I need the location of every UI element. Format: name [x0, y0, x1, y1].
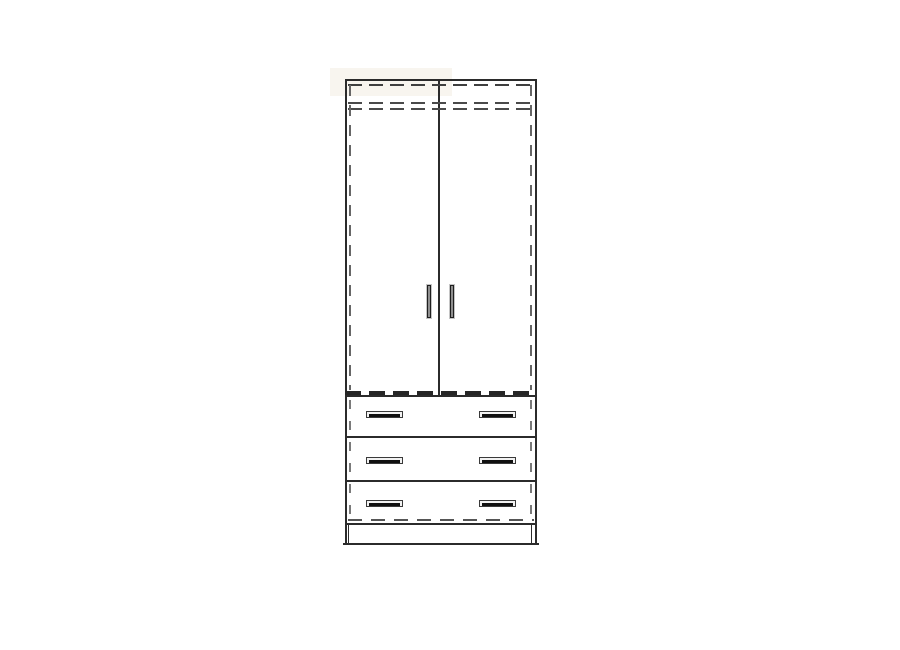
- right-door-panel: [440, 81, 535, 395]
- left-door-panel: [347, 81, 438, 395]
- carcass-right-edge: [535, 79, 537, 545]
- hidden-carcass-side-right: [530, 85, 532, 390]
- drawer-1-left-handle: [366, 411, 403, 418]
- drawer-handle-slot: [369, 503, 400, 506]
- plinth-bottom-edge: [343, 543, 539, 545]
- drawer-3-right-handle: [479, 500, 516, 507]
- plinth-inner-left-edge: [348, 525, 349, 543]
- door-divider-line: [438, 79, 440, 397]
- drawer-2-left-handle: [366, 457, 403, 464]
- drawer-handle-slot: [369, 460, 400, 463]
- drawer-handle-slot: [482, 460, 513, 463]
- right-door-handle: [449, 284, 455, 319]
- hidden-top-panel-line: [348, 84, 534, 86]
- drawer-handle-slot: [369, 414, 400, 417]
- hidden-shelf-line-upper: [348, 102, 534, 104]
- left-door-handle: [426, 284, 432, 319]
- plinth-top-edge: [345, 523, 537, 525]
- drawing-canvas: [0, 0, 900, 650]
- drawer-handle-slot: [482, 414, 513, 417]
- drawer-divider-1: [345, 436, 537, 438]
- hidden-carcass-side-left: [349, 85, 351, 390]
- hidden-drawer-side-right: [530, 400, 532, 518]
- plinth: [345, 523, 537, 545]
- plinth-inner-right-edge: [531, 525, 532, 543]
- door-handle-slot: [451, 286, 453, 317]
- door-handle-slot: [428, 286, 430, 317]
- drawer-3-left-handle: [366, 500, 403, 507]
- hidden-shelf-line-lower: [348, 108, 534, 110]
- hidden-drawer-side-left: [349, 400, 351, 518]
- drawer-1-right-handle: [479, 411, 516, 418]
- drawer-handle-slot: [482, 503, 513, 506]
- drawer-2-right-handle: [479, 457, 516, 464]
- hidden-bottom-panel-line: [348, 519, 534, 521]
- drawer-divider-2: [345, 480, 537, 482]
